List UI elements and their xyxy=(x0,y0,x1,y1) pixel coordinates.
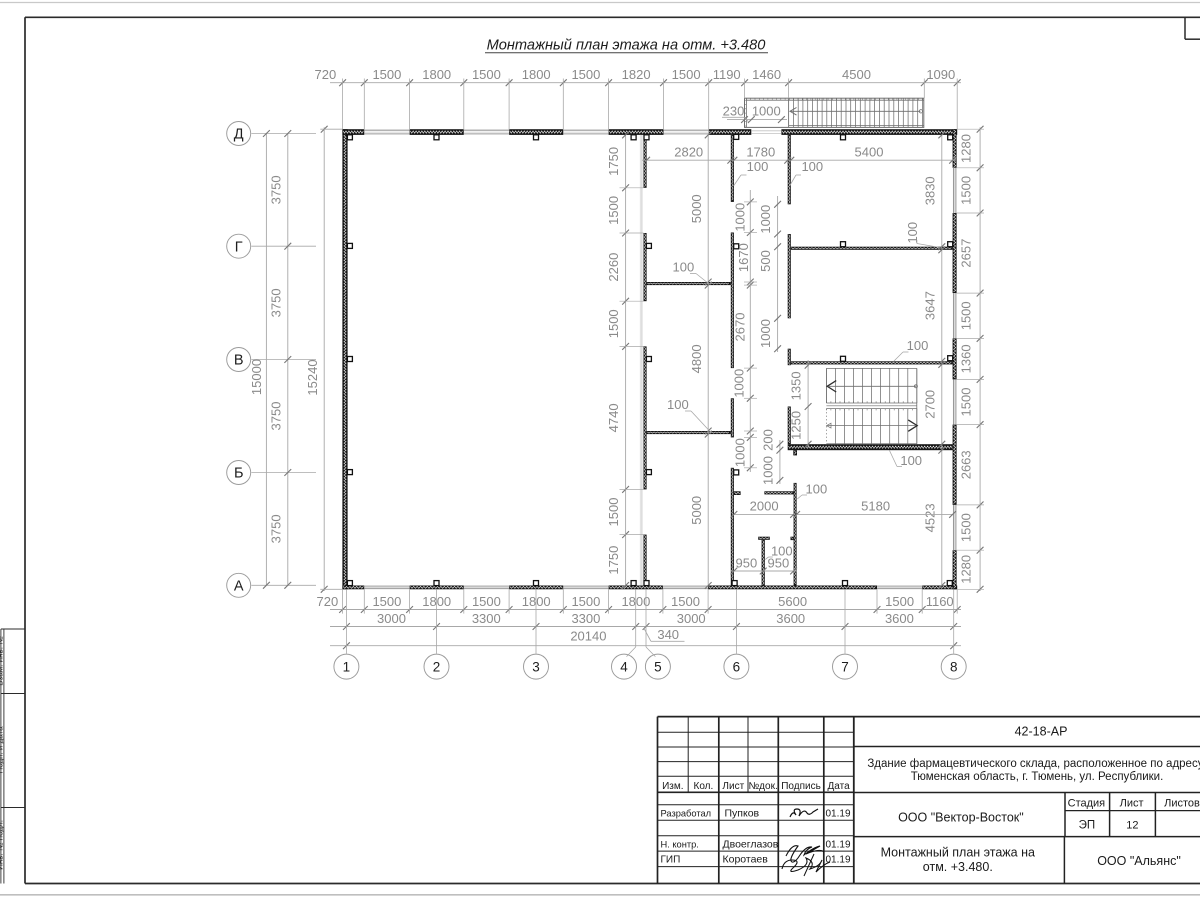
svg-text:Дата: Дата xyxy=(828,781,851,792)
svg-text:Тюменская область, г. Тюмень,: Тюменская область, г. Тюмень, ул. Респуб… xyxy=(911,771,1164,783)
svg-text:3600: 3600 xyxy=(885,611,914,626)
svg-text:1090: 1090 xyxy=(926,67,955,82)
svg-text:4500: 4500 xyxy=(842,67,871,82)
svg-text:15240: 15240 xyxy=(305,359,320,395)
svg-text:42-18-АР: 42-18-АР xyxy=(1015,725,1068,739)
svg-text:8: 8 xyxy=(950,659,958,674)
svg-text:2: 2 xyxy=(433,659,441,674)
svg-text:1500: 1500 xyxy=(606,498,621,527)
svg-text:1500: 1500 xyxy=(606,196,621,225)
svg-text:1000: 1000 xyxy=(733,438,748,467)
svg-text:20140: 20140 xyxy=(570,629,606,644)
svg-text:1500: 1500 xyxy=(885,594,914,609)
svg-text:100: 100 xyxy=(900,453,922,468)
svg-text:1500: 1500 xyxy=(672,67,701,82)
svg-text:1000: 1000 xyxy=(758,205,773,234)
svg-text:1750: 1750 xyxy=(606,546,621,575)
svg-text:2700: 2700 xyxy=(922,390,937,419)
svg-text:1500: 1500 xyxy=(472,67,501,82)
svg-text:1500: 1500 xyxy=(959,301,974,330)
svg-text:Разработал: Разработал xyxy=(661,809,712,819)
svg-text:1000: 1000 xyxy=(752,104,781,119)
svg-text:3300: 3300 xyxy=(472,611,501,626)
svg-text:100: 100 xyxy=(667,397,689,412)
svg-text:4: 4 xyxy=(620,659,628,674)
svg-text:Кол.: Кол. xyxy=(694,781,714,792)
svg-text:2260: 2260 xyxy=(606,253,621,282)
svg-text:100: 100 xyxy=(806,481,828,496)
svg-text:3000: 3000 xyxy=(677,611,706,626)
svg-text:Стадия: Стадия xyxy=(1068,797,1106,809)
svg-text:4800: 4800 xyxy=(689,344,704,373)
svg-text:ООО "Вектор-Восток": ООО "Вектор-Восток" xyxy=(898,811,1024,825)
svg-text:1500: 1500 xyxy=(472,594,501,609)
svg-text:1280: 1280 xyxy=(959,555,974,584)
svg-text:Монтажный план этажа на отм. +: Монтажный план этажа на отм. +3.480 xyxy=(487,37,766,53)
svg-text:Пупков: Пупков xyxy=(725,808,760,820)
svg-text:340: 340 xyxy=(657,627,679,642)
svg-text:3: 3 xyxy=(532,659,540,674)
svg-text:ООО "Альянс": ООО "Альянс" xyxy=(1097,854,1181,868)
svg-text:6: 6 xyxy=(733,659,741,674)
svg-text:1750: 1750 xyxy=(606,147,621,176)
svg-text:Инв. № подл.: Инв. № подл. xyxy=(0,820,5,870)
svg-text:1500: 1500 xyxy=(959,513,974,542)
svg-text:3600: 3600 xyxy=(776,611,805,626)
svg-text:1000: 1000 xyxy=(733,203,748,232)
svg-text:2670: 2670 xyxy=(733,313,748,342)
svg-text:2663: 2663 xyxy=(959,450,974,479)
svg-text:720: 720 xyxy=(315,67,337,82)
svg-text:5180: 5180 xyxy=(861,499,890,514)
svg-text:1500: 1500 xyxy=(671,594,700,609)
svg-text:Н. контр.: Н. контр. xyxy=(661,839,699,849)
svg-text:Б: Б xyxy=(234,466,244,482)
svg-text:1190: 1190 xyxy=(713,67,741,82)
svg-text:1000: 1000 xyxy=(758,319,773,348)
svg-text:5400: 5400 xyxy=(855,144,884,159)
svg-text:1360: 1360 xyxy=(959,344,974,373)
svg-text:Коротаев: Коротаев xyxy=(723,854,769,866)
svg-text:1500: 1500 xyxy=(959,176,974,205)
svg-text:12: 12 xyxy=(1126,820,1138,832)
svg-text:№док.: №док. xyxy=(748,781,777,792)
svg-text:100: 100 xyxy=(907,338,929,353)
svg-text:Здание фармацевтического склад: Здание фармацевтического склада, располо… xyxy=(867,758,1200,770)
svg-text:3000: 3000 xyxy=(377,611,406,626)
svg-text:950: 950 xyxy=(736,556,758,571)
svg-text:1500: 1500 xyxy=(372,594,401,609)
svg-text:3750: 3750 xyxy=(268,514,283,543)
svg-text:100: 100 xyxy=(771,543,793,558)
svg-text:Д: Д xyxy=(234,127,244,143)
svg-text:ГИП: ГИП xyxy=(661,855,681,866)
svg-text:1350: 1350 xyxy=(789,371,804,400)
svg-text:А: А xyxy=(234,578,244,594)
svg-text:01.19: 01.19 xyxy=(825,809,850,820)
svg-text:1500: 1500 xyxy=(571,594,600,609)
svg-text:1800: 1800 xyxy=(422,67,451,82)
svg-text:1280: 1280 xyxy=(959,134,974,163)
svg-text:500: 500 xyxy=(758,250,773,272)
svg-text:Г: Г xyxy=(235,239,243,255)
svg-text:15000: 15000 xyxy=(249,359,264,395)
svg-text:отм. +3.480.: отм. +3.480. xyxy=(923,860,993,874)
svg-text:5600: 5600 xyxy=(778,594,807,609)
svg-text:4740: 4740 xyxy=(606,403,621,432)
svg-text:2000: 2000 xyxy=(750,499,779,514)
svg-text:3830: 3830 xyxy=(922,176,937,205)
svg-text:100: 100 xyxy=(801,159,823,174)
svg-text:1800: 1800 xyxy=(522,67,551,82)
svg-text:Монтажный план этажа на: Монтажный план этажа на xyxy=(881,846,1035,860)
svg-text:4523: 4523 xyxy=(922,503,937,532)
svg-text:1820: 1820 xyxy=(622,67,651,82)
svg-text:3300: 3300 xyxy=(571,611,600,626)
svg-text:5000: 5000 xyxy=(689,194,704,223)
svg-text:230: 230 xyxy=(723,104,745,119)
svg-text:1160: 1160 xyxy=(926,594,954,609)
svg-text:3750: 3750 xyxy=(268,288,283,317)
svg-text:1500: 1500 xyxy=(571,67,600,82)
svg-text:3647: 3647 xyxy=(922,291,937,320)
svg-text:Взам. инв. №: Взам. инв. № xyxy=(0,636,5,686)
svg-text:200: 200 xyxy=(760,429,775,451)
svg-text:01.19: 01.19 xyxy=(825,839,850,850)
svg-text:100: 100 xyxy=(747,159,769,174)
svg-text:7: 7 xyxy=(841,659,849,674)
svg-text:1000: 1000 xyxy=(760,456,775,485)
svg-text:Подпись: Подпись xyxy=(781,781,821,792)
svg-text:ЭП: ЭП xyxy=(1079,820,1096,832)
svg-text:1500: 1500 xyxy=(959,388,974,417)
svg-text:01.19: 01.19 xyxy=(825,855,850,866)
svg-text:5: 5 xyxy=(654,659,662,674)
svg-text:Лист: Лист xyxy=(1120,797,1144,809)
svg-text:Листов: Листов xyxy=(1164,797,1200,809)
svg-text:2820: 2820 xyxy=(674,144,703,159)
svg-text:1780: 1780 xyxy=(746,144,775,159)
svg-text:2657: 2657 xyxy=(959,239,974,268)
svg-text:Двоеглазов: Двоеглазов xyxy=(723,838,779,850)
svg-text:Изм.: Изм. xyxy=(662,781,683,792)
svg-text:3750: 3750 xyxy=(268,175,283,204)
svg-text:Подп. и дата: Подп. и дата xyxy=(0,726,5,774)
svg-text:1250: 1250 xyxy=(789,411,804,440)
svg-text:100: 100 xyxy=(673,260,695,275)
svg-text:1500: 1500 xyxy=(606,309,621,338)
svg-text:5000: 5000 xyxy=(689,496,704,525)
svg-text:1500: 1500 xyxy=(372,67,401,82)
svg-text:1: 1 xyxy=(343,659,351,674)
svg-text:3750: 3750 xyxy=(268,402,283,431)
svg-text:1670: 1670 xyxy=(736,243,751,272)
svg-text:Лист: Лист xyxy=(722,781,744,792)
svg-text:В: В xyxy=(234,353,244,369)
svg-text:1460: 1460 xyxy=(752,67,781,82)
svg-text:1000: 1000 xyxy=(732,369,747,398)
svg-text:100: 100 xyxy=(905,222,920,244)
svg-text:720: 720 xyxy=(317,594,339,609)
